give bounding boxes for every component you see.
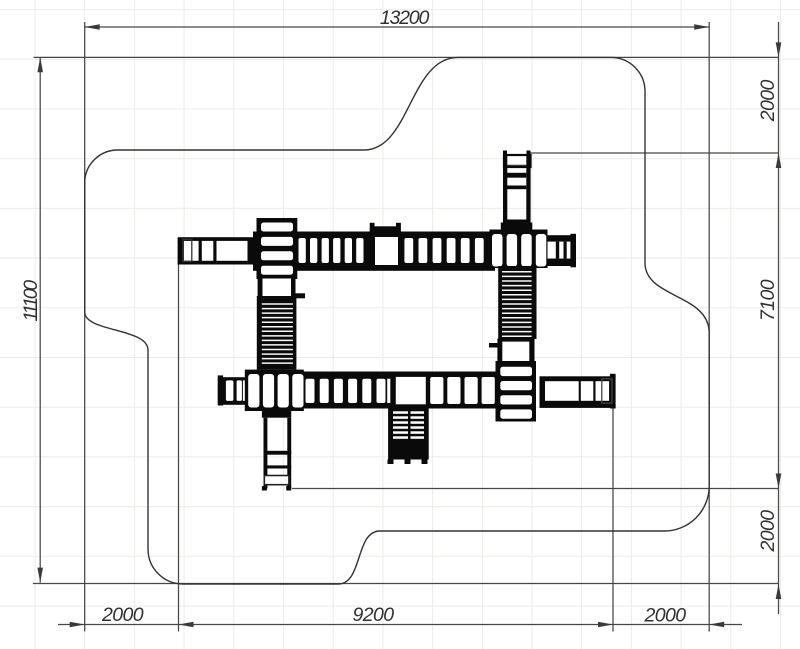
svg-text:2000: 2000 (101, 604, 144, 626)
svg-text:2000: 2000 (644, 605, 687, 627)
svg-text:11100: 11100 (20, 280, 42, 322)
svg-text:9200: 9200 (353, 604, 395, 626)
svg-text:2000: 2000 (757, 510, 779, 553)
svg-text:7100: 7100 (757, 279, 779, 321)
svg-text:2000: 2000 (757, 80, 779, 123)
svg-text:13200: 13200 (380, 7, 430, 29)
